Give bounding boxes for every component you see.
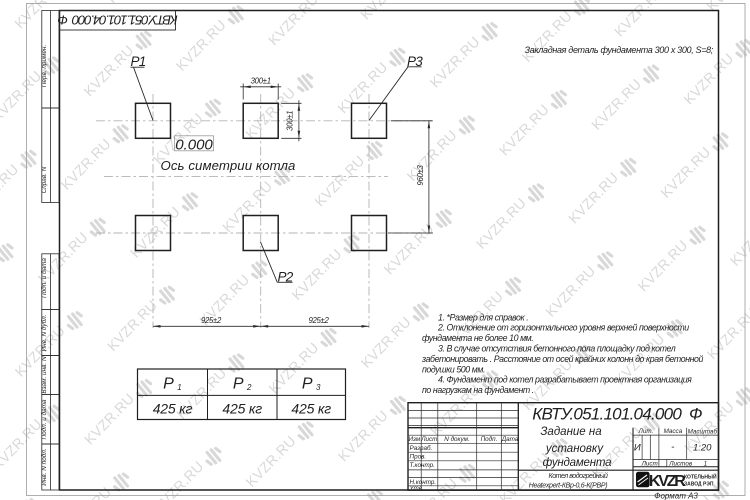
svg-text:Р: Р [233,376,244,393]
svg-text:KVZR.RU: KVZR.RU [358,314,414,371]
svg-text:KVZR.RU: KVZR.RU [427,34,483,91]
svg-text:KVZR.RU: KVZR.RU [705,306,750,363]
svg-text:КВТУ.051.101.04.000 Ф: КВТУ.051.101.04.000 Ф [532,405,702,424]
svg-text:KVZR.RU: KVZR.RU [635,238,691,295]
svg-text:3: 3 [316,383,321,392]
svg-text:KVZR.RU: KVZR.RU [658,144,714,201]
svg-text:1: 1 [177,383,181,392]
svg-text:Р: Р [302,376,313,393]
svg-text:Котел водогрейный: Котел водогрейный [549,472,608,480]
svg-text:0.000: 0.000 [175,136,213,153]
svg-text:И: И [634,443,641,454]
svg-text:по нагрузкам на фундамент .: по нагрузкам на фундамент . [422,385,534,395]
svg-text:KVZR.RU: KVZR.RU [566,170,622,227]
svg-text:Лист: Лист [420,436,437,443]
svg-text:Подп.: Подп. [481,435,498,443]
svg-text:N докум.: N докум. [444,435,469,443]
svg-text:425 кг: 425 кг [153,400,193,416]
svg-text:KVZR.RU: KVZR.RU [474,195,530,252]
svg-text:Р: Р [163,376,174,393]
svg-text:925±2: 925±2 [201,316,222,325]
svg-text:Формат А3: Формат А3 [654,491,698,500]
svg-text:KVZR.RU: KVZR.RU [404,127,460,184]
svg-text:KVZR.RU: KVZR.RU [174,17,230,74]
svg-text:Инв. N подл.: Инв. N подл. [40,448,48,485]
svg-text:2. Отклонение от горизонтальн: 2. Отклонение от горизонтального уровня … [437,323,689,333]
svg-text:ЗАВОД РЭП: ЗАВОД РЭП [684,482,714,488]
svg-text:Heatexpert-КВр-0,6-К(РВР): Heatexpert-КВр-0,6-К(РВР) [529,482,607,489]
svg-text:забетонировать . Расстояние о: забетонировать . Расстояние от осей край… [421,354,704,364]
svg-text:KVZR: KVZR [649,473,686,490]
svg-text:Изм: Изм [408,436,420,443]
svg-text:KVZR.RU: KVZR.RU [289,246,345,303]
svg-text:KVZR.RU: KVZR.RU [59,484,115,500]
svg-text:2: 2 [246,383,252,392]
svg-text:КВТУ.051.101.04.000 Ф: КВТУ.051.101.04.000 Ф [57,13,178,28]
svg-text:KVZR.RU: KVZR.RU [243,433,299,490]
svg-text:Пров.: Пров. [410,454,427,461]
svg-text:Лист: Лист [641,460,658,467]
svg-text:подушки 500 мм.: подушки 500 мм. [422,364,485,374]
svg-text:KVZR.RU: KVZR.RU [0,68,45,125]
svg-text:1: 1 [704,460,708,467]
svg-text:1:20: 1:20 [693,443,712,454]
svg-text:фундамента не более 10 мм.: фундамента не более 10 мм. [422,333,533,343]
svg-text:KVZR.RU: KVZR.RU [82,391,138,448]
svg-text:KVZR.RU: KVZR.RU [335,59,391,116]
svg-text:Подп. и дата: Подп. и дата [40,399,48,439]
svg-text:KVZR.RU: KVZR.RU [681,51,737,108]
svg-text:Задание на: Задание на [540,426,601,438]
svg-text:фундамента: фундамента [543,457,612,469]
svg-text:Листов: Листов [668,460,693,467]
svg-text:Ось симетрии котла: Ось симетрии котла [161,158,296,173]
svg-text:3. В случае отсутствия бетонн: 3. В случае отсутствия бетонного пола пл… [438,344,676,354]
svg-text:Дата: Дата [501,436,519,443]
svg-text:KVZR.RU: KVZR.RU [312,153,368,210]
svg-text:KVZR.RU: KVZR.RU [543,263,599,320]
svg-text:Утв.: Утв. [409,485,424,492]
svg-text:KVZR.RU: KVZR.RU [81,43,137,100]
svg-text:KVZR.RU: KVZR.RU [58,136,114,193]
svg-text:4. Фундамент под котел разраб: 4. Фундамент под котел разрабатывает про… [438,375,692,385]
svg-text:425 кг: 425 кг [291,400,331,416]
svg-text:Справ. N: Справ. N [41,166,48,193]
svg-text:300±1: 300±1 [286,111,295,131]
svg-text:KVZR.RU: KVZR.RU [266,0,322,49]
svg-text:KVZR.RU: KVZR.RU [589,76,645,133]
svg-text:KVZR.RU: KVZR.RU [336,408,392,465]
svg-text:KVZR.RU: KVZR.RU [0,162,22,219]
svg-text:KVZR.RU: KVZR.RU [220,178,276,235]
svg-text:-: - [671,442,675,453]
svg-text:KVZR.RU: KVZR.RU [151,459,207,500]
svg-text:Разраб.: Разраб. [410,444,433,452]
svg-text:KVZR.RU: KVZR.RU [704,0,750,15]
svg-text:КОТЕЛЬНЫЙ: КОТЕЛЬНЫЙ [684,472,717,480]
svg-text:Масштаб: Масштаб [688,428,718,436]
svg-text:1. *Размер для справок .: 1. *Размер для справок . [438,312,528,322]
svg-text:KVZR.RU: KVZR.RU [497,102,553,159]
svg-text:KVZR.RU: KVZR.RU [727,212,750,269]
svg-text:Масса: Масса [664,428,683,435]
svg-text:Взам. инв. N: Взам. инв. N [41,356,48,394]
svg-text:KVZR.RU: KVZR.RU [0,416,46,473]
svg-text:KVZR.RU: KVZR.RU [105,297,161,354]
svg-text:Лит.: Лит. [638,428,654,435]
svg-text:KVZR.RU: KVZR.RU [520,8,576,65]
svg-text:установку: установку [545,443,605,455]
svg-text:425 кг: 425 кг [222,400,262,416]
svg-text:Т.контр.: Т.контр. [410,462,435,469]
svg-text:Инв. N дубл.: Инв. N дубл. [40,315,48,352]
svg-text:960±3: 960±3 [416,164,425,185]
svg-text:KVZR.RU: KVZR.RU [612,0,668,40]
svg-text:300±1: 300±1 [251,77,271,86]
svg-text:Закладная деталь фундамента 3: Закладная деталь фундамента 300 х 300, S… [525,45,714,55]
svg-text:Подп. и дата: Подп. и дата [40,258,48,298]
svg-text:925±2: 925±2 [308,316,329,325]
svg-text:Перв. примен.: Перв. примен. [41,45,48,87]
